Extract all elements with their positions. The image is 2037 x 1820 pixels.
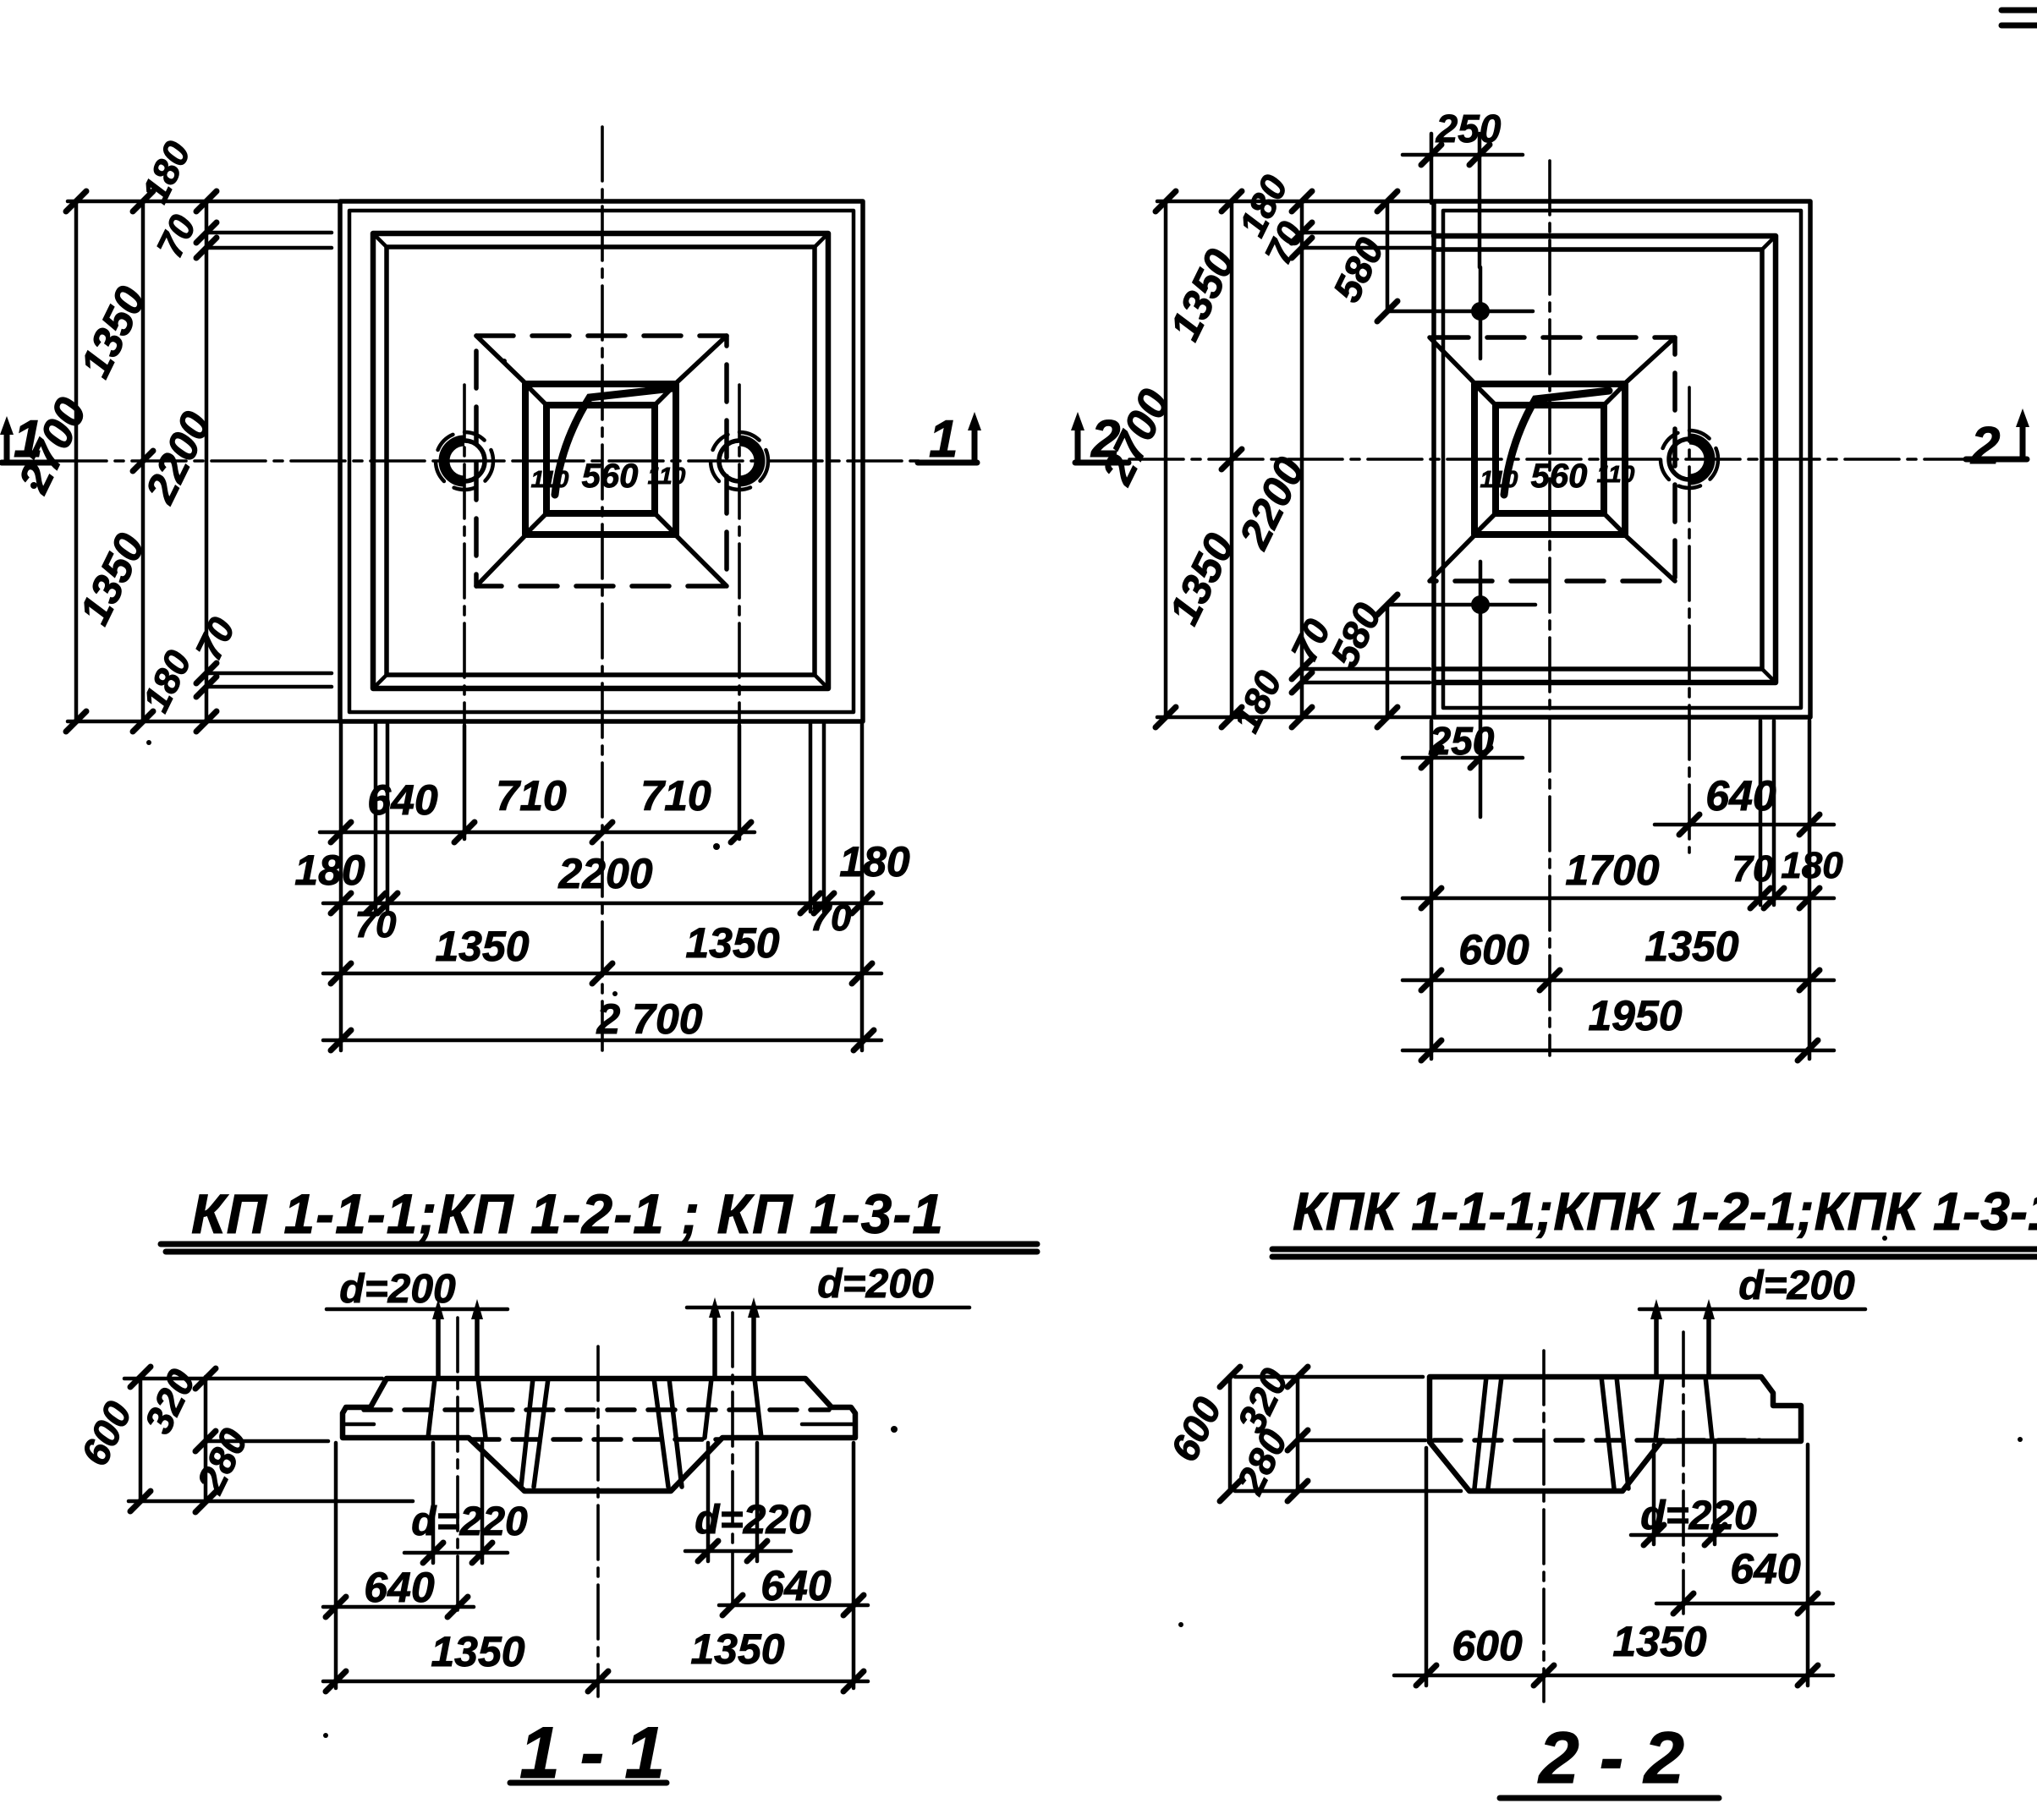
svg-text:710: 710	[496, 772, 567, 820]
svg-text:1350: 1350	[685, 919, 779, 967]
svg-text:180: 180	[1781, 845, 1843, 886]
svg-text:70: 70	[1732, 848, 1774, 890]
svg-text:d=220: d=220	[411, 1499, 528, 1544]
svg-text:600: 600	[1458, 926, 1529, 973]
svg-text:110: 110	[648, 463, 686, 489]
svg-text:640: 640	[364, 1564, 435, 1611]
svg-text:640: 640	[367, 776, 438, 824]
svg-text:560: 560	[1531, 458, 1588, 495]
svg-text:180: 180	[294, 847, 365, 894]
svg-text:1350: 1350	[690, 1625, 784, 1673]
svg-text:2200: 2200	[557, 850, 652, 897]
svg-text:1: 1	[929, 410, 958, 469]
svg-text:1350: 1350	[431, 1628, 524, 1675]
svg-text:d=200: d=200	[1738, 1264, 1855, 1308]
svg-text:1700: 1700	[1565, 847, 1659, 894]
svg-text:640: 640	[760, 1562, 832, 1609]
svg-text:640: 640	[1705, 772, 1776, 820]
svg-text:180: 180	[839, 838, 910, 885]
svg-text:640: 640	[1730, 1545, 1801, 1592]
svg-text:КПК 1-1-1;КПК 1-2-1;КПК 1-3-1: КПК 1-1-1;КПК 1-2-1;КПК 1-3-1	[1293, 1182, 2037, 1242]
svg-text:d=200: d=200	[817, 1262, 934, 1307]
svg-text:110: 110	[531, 466, 569, 492]
svg-text:560: 560	[582, 458, 639, 495]
svg-text:600: 600	[1452, 1622, 1523, 1669]
svg-text:1350: 1350	[435, 923, 529, 970]
svg-text:2 700: 2 700	[596, 995, 702, 1043]
svg-text:70: 70	[810, 897, 852, 939]
svg-text:1350: 1350	[1644, 923, 1738, 970]
svg-text:710: 710	[640, 772, 711, 820]
svg-text:110: 110	[1480, 466, 1518, 492]
svg-text:2: 2	[1970, 417, 2000, 475]
svg-text:110: 110	[1597, 461, 1635, 487]
svg-text:2 - 2: 2 - 2	[1537, 1718, 1684, 1799]
svg-text:d=200: d=200	[339, 1267, 456, 1312]
svg-text:d=220: d=220	[695, 1498, 811, 1543]
svg-text:1950: 1950	[1588, 992, 1682, 1039]
svg-text:КП 1-1-1;КП 1-2-1 ; КП 1-3-1: КП 1-1-1;КП 1-2-1 ; КП 1-3-1	[191, 1182, 944, 1245]
svg-text:1350: 1350	[1612, 1618, 1706, 1665]
